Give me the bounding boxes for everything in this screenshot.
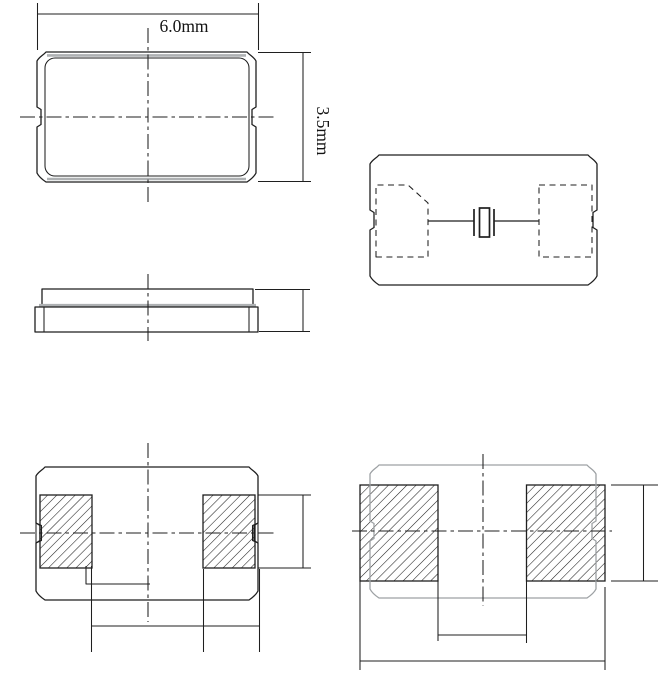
bottom-view: [20, 443, 311, 652]
bottom-pad-right: [203, 495, 255, 568]
top-view: 6.0mm 3.5mm: [20, 3, 333, 206]
side-height-dimension: [255, 290, 310, 332]
bottom-pad-left: [40, 495, 92, 568]
land-pad-left: [360, 485, 438, 581]
bottom-pad-height-dimension: [258, 495, 311, 568]
land-inner-spacing-dimension: [438, 581, 527, 643]
land-pad-height-dimension: [611, 485, 658, 581]
land-pad-right: [527, 485, 606, 581]
package-drawing-svg: 6.0mm 3.5mm: [0, 0, 670, 676]
side-base: [35, 307, 258, 332]
land-pattern-view: [352, 454, 658, 670]
side-view: [35, 274, 310, 341]
width-dimension-label: 6.0mm: [159, 16, 208, 36]
internal-view: [370, 155, 597, 285]
height-dimension-label: 3.5mm: [313, 106, 333, 155]
internal-package-outline: [370, 155, 597, 285]
drawing-sheet: 6.0mm 3.5mm: [0, 0, 670, 676]
